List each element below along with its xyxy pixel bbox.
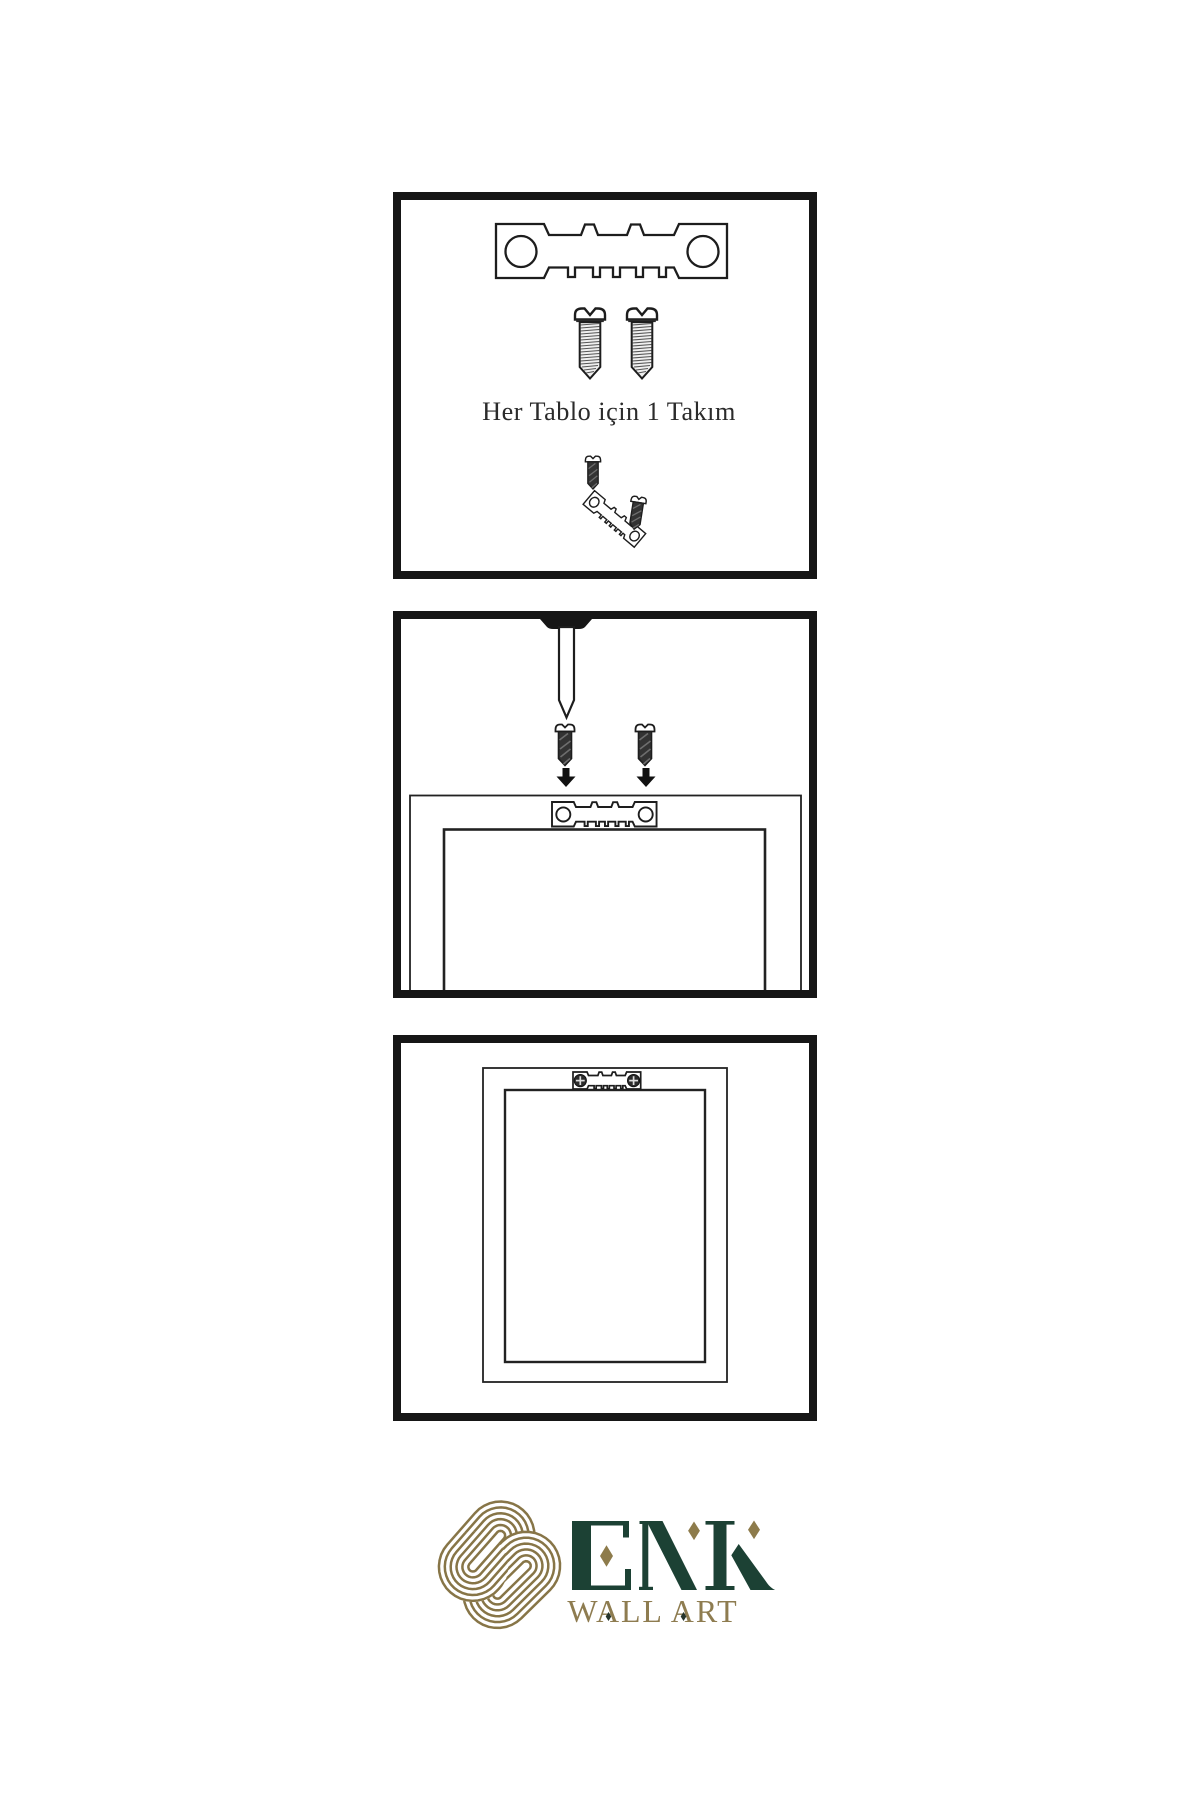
svg-text:WALL ART: WALL ART [567, 1593, 738, 1629]
svg-text:Her Tablo için 1 Takım: Her Tablo için 1 Takım [482, 397, 736, 426]
